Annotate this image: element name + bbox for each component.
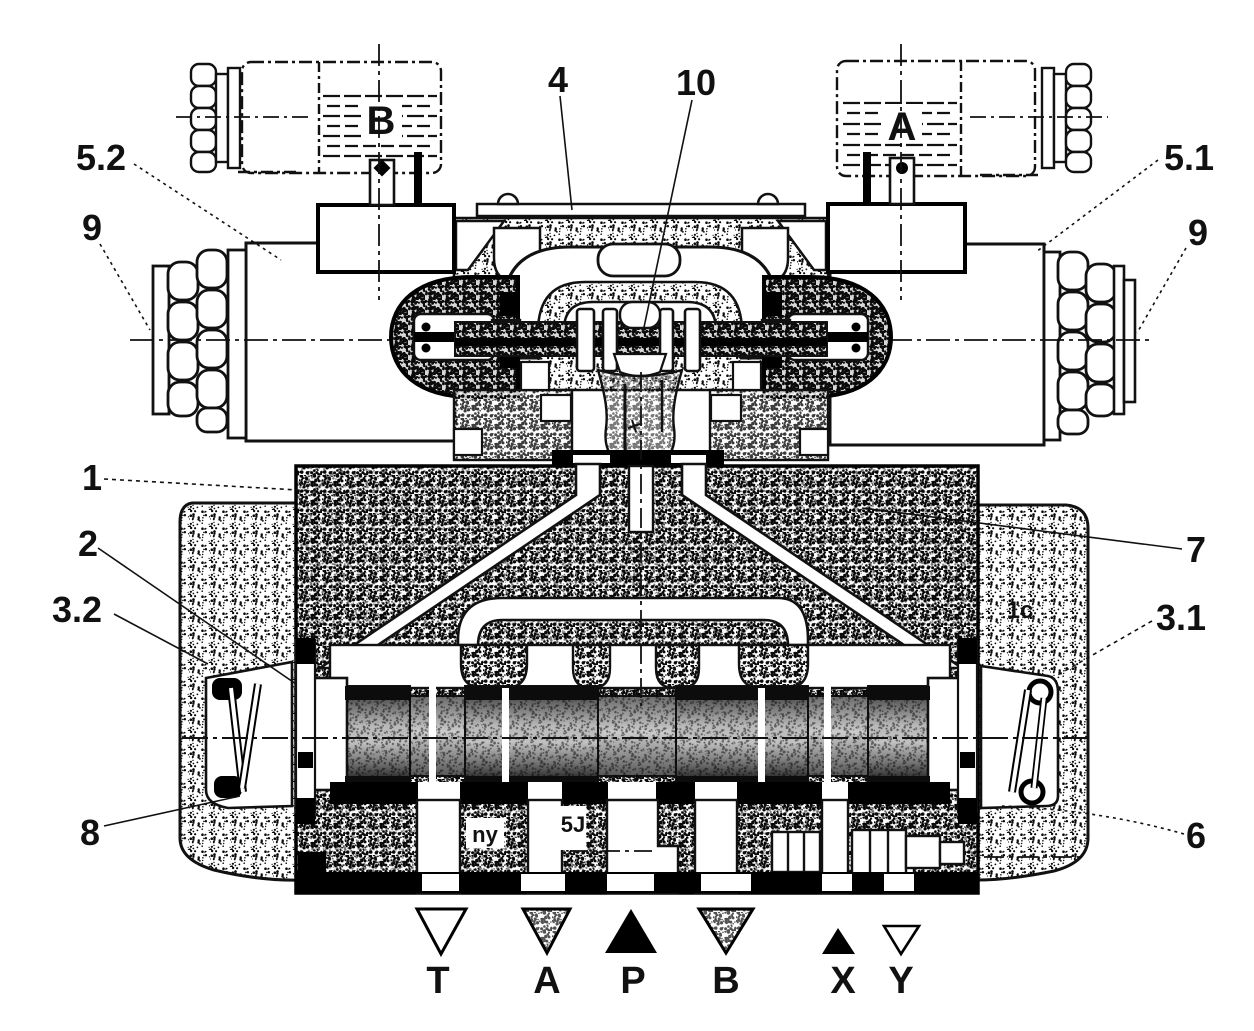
svg-text:3.2: 3.2 [52,589,102,630]
svg-text:5.1: 5.1 [1164,137,1214,178]
svg-text:A: A [533,960,560,1002]
svg-text:P: P [620,960,645,1002]
svg-text:4: 4 [548,59,568,100]
svg-text:Y: Y [888,960,913,1002]
svg-text:3.1: 3.1 [1156,597,1206,638]
svg-text:7: 7 [1186,529,1206,570]
svg-text:8: 8 [80,812,100,853]
svg-text:5.2: 5.2 [76,137,126,178]
svg-text:T: T [426,960,449,1002]
svg-text:1c: 1c [1007,597,1034,624]
svg-text:A: A [888,105,917,149]
svg-text:B: B [367,99,396,143]
svg-text:ny: ny [472,822,498,847]
svg-text:B: B [712,960,739,1002]
svg-text:X: X [830,960,856,1002]
svg-text:1: 1 [82,457,102,498]
svg-text:2: 2 [78,523,98,564]
svg-text:9: 9 [1188,212,1208,253]
svg-text:6: 6 [1186,815,1206,856]
svg-text:5J: 5J [561,812,585,837]
svg-text:9: 9 [82,207,102,248]
svg-text:10: 10 [676,62,716,103]
